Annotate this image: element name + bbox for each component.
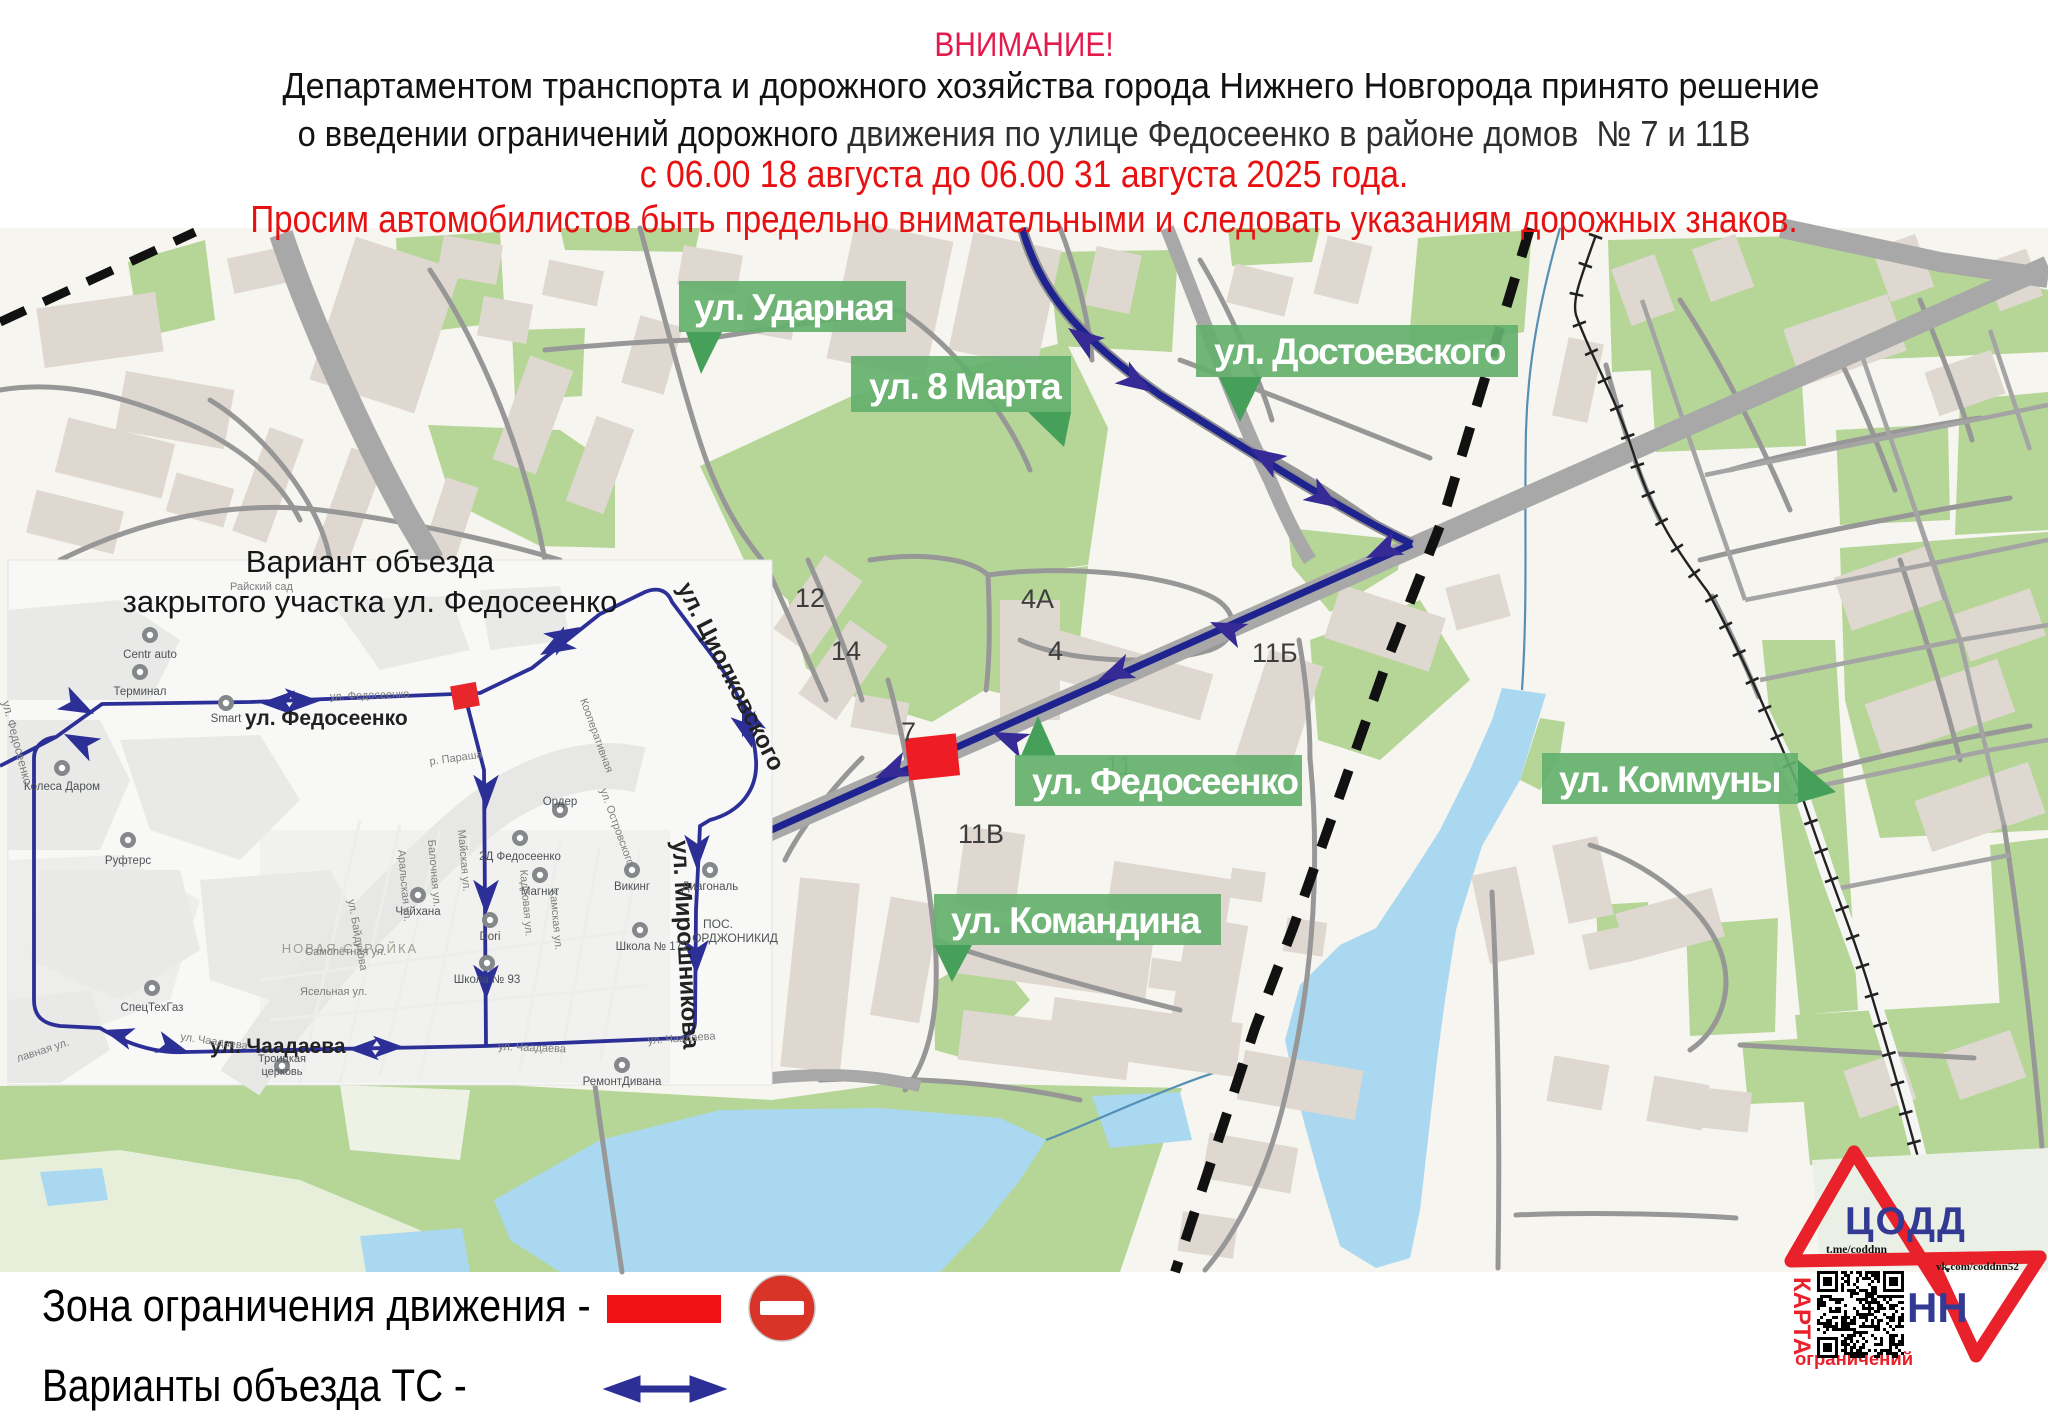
svg-text:ОРДЖОНИКИД: ОРДЖОНИКИД [692,931,778,945]
svg-text:Smart: Smart [211,713,242,725]
svg-text:11В: 11В [958,819,1004,849]
svg-text:ЦОДД: ЦОДД [1845,1200,1967,1243]
svg-text:ул. 8 Марта: ул. 8 Марта [869,366,1062,407]
svg-text:Школа № 172: Школа № 172 [616,941,689,953]
svg-text:2Д Федосеенко: 2Д Федосеенко [479,851,561,863]
svg-text:КАРТА: КАРТА [1788,1277,1815,1355]
svg-text:Викинг: Викинг [614,881,650,893]
svg-text:Диагональ: Диагональ [682,881,738,893]
svg-text:Школа № 93: Школа № 93 [454,974,520,986]
svg-text:Centr auto: Centr auto [123,649,177,661]
svg-text:11Б: 11Б [1252,638,1298,668]
svg-text:ул. Коммуны: ул. Коммуны [1559,759,1780,800]
svg-text:РемонтДивана: РемонтДивана [583,1076,662,1088]
svg-text:Самолётная ул.: Самолётная ул. [305,946,386,958]
svg-text:СпецТехГаз: СпецТехГаз [121,1002,184,1014]
svg-text:Троицкая: Троицкая [258,1053,306,1065]
svg-text:Терминал: Терминал [114,686,167,698]
svg-text:ПОС.: ПОС. [703,917,733,931]
svg-text:Варианты объезда ТС -: Варианты объезда ТС - [42,1360,467,1410]
svg-text:vk.com/coddnn52: vk.com/coddnn52 [1936,1261,2019,1273]
svg-text:ограничений: ограничений [1795,1348,1913,1369]
svg-text:t.me/coddnn: t.me/coddnn [1826,1244,1888,1256]
svg-text:7: 7 [901,717,916,747]
svg-text:ул. Ударная: ул. Ударная [694,287,894,328]
svg-text:Зона ограничения движения -: Зона ограничения движения - [42,1281,591,1331]
svg-text:церковь: церковь [261,1066,302,1078]
svg-text:Dori: Dori [479,931,500,943]
svg-text:закрытого участка ул. Федосеен: закрытого участка ул. Федосеенко [123,584,618,619]
svg-text:ул. Федосеенко: ул. Федосеенко [245,707,408,730]
svg-text:ул. Чаадаева: ул. Чаадаева [498,1041,567,1055]
svg-text:Вариант объезда: Вариант объезда [246,544,495,579]
svg-text:4А: 4А [1021,584,1054,614]
svg-text:12: 12 [795,583,825,613]
svg-text:Руфтерс: Руфтерс [105,855,151,867]
svg-text:НН: НН [1907,1284,1968,1331]
svg-text:14: 14 [831,636,861,666]
svg-text:4: 4 [1048,636,1063,666]
svg-text:Ясельная ул.: Ясельная ул. [300,986,367,998]
svg-text:ул. Командина: ул. Командина [951,900,1201,941]
svg-text:ул. Достоевского: ул. Достоевского [1214,331,1506,372]
svg-text:ул. Федосеенко: ул. Федосеенко [1032,761,1299,802]
svg-text:Колеса Даром: Колеса Даром [24,781,100,793]
svg-text:Райский сад: Райский сад [230,581,294,593]
svg-text:Ордер: Ордер [543,796,578,808]
